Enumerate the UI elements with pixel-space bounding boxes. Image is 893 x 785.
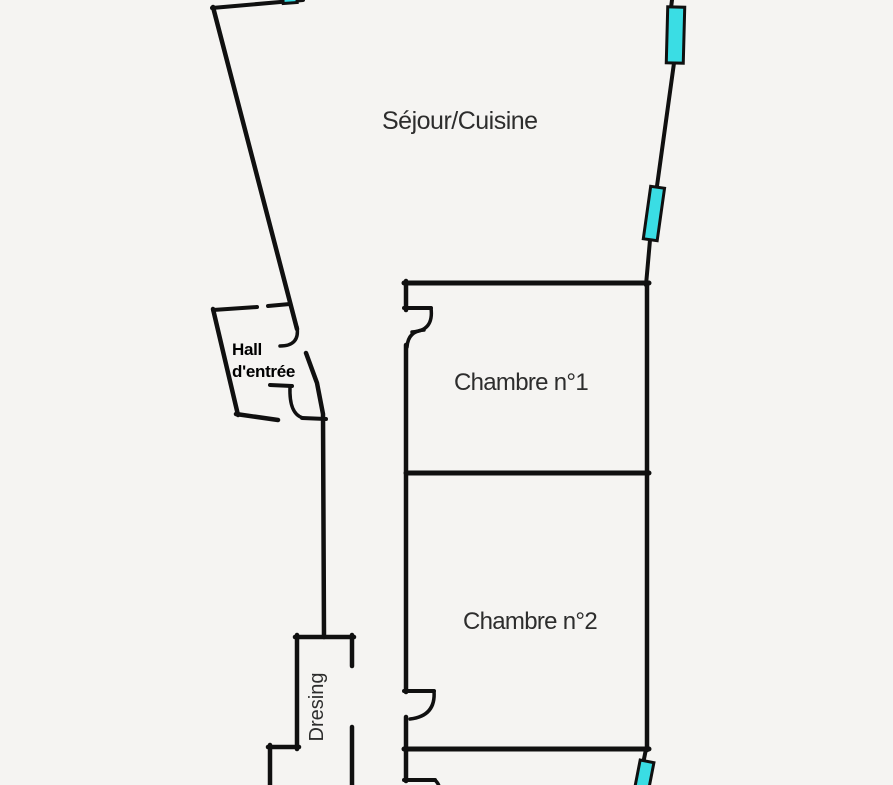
wall-right-upper <box>657 63 674 186</box>
room-label-chambre1: Chambre n°1 <box>454 369 588 397</box>
bottom-right-window-icon <box>634 760 654 785</box>
chambre2-door-curl <box>410 691 434 719</box>
room-label-hall-entree: Hall d'entrée <box>232 339 295 382</box>
wall-sejour-left-slanted <box>213 7 297 329</box>
wall-right-mid <box>646 240 650 285</box>
chambre1-door-arc <box>407 330 424 347</box>
hall-door-arc <box>290 387 303 418</box>
lower-door-arc <box>435 780 439 785</box>
wall-hall-bottom <box>236 414 278 420</box>
room-label-dresing: Dresing <box>304 667 330 747</box>
hall-label-line2: d'entrée <box>232 361 295 383</box>
wall-hall-top-right <box>268 304 290 306</box>
hall-door-jamb <box>302 418 326 419</box>
room-label-sejour-cuisine: Séjour/Cuisine <box>382 107 538 136</box>
wall-corridor-left <box>306 353 324 637</box>
hall-label-line1: Hall <box>232 339 295 361</box>
right-wall-window-lower-icon <box>643 186 664 240</box>
right-wall-window-upper-icon <box>666 7 684 63</box>
chambre1-door-curl <box>412 308 431 332</box>
floor-plan: Séjour/Cuisine Hall d'entrée Chambre n°1… <box>0 0 893 785</box>
top-wall-window-icon <box>283 0 297 3</box>
wall-hall-top-left <box>213 307 257 310</box>
room-label-chambre2: Chambre n°2 <box>463 608 597 636</box>
